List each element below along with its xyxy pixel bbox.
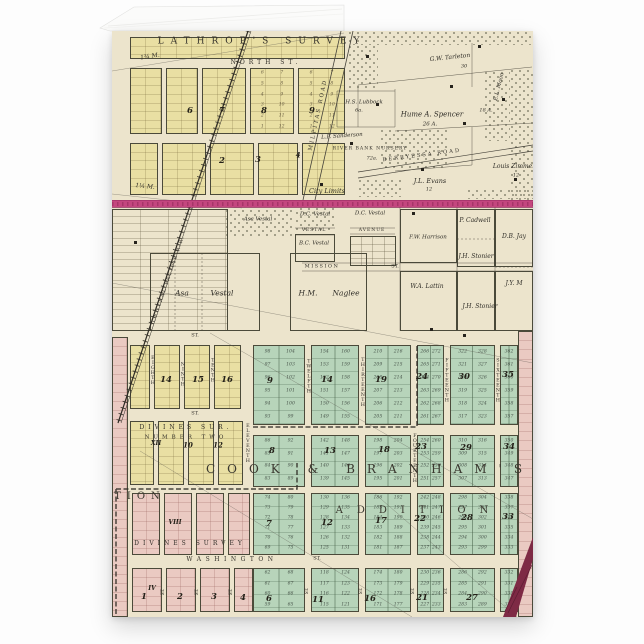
map-label: H.M.: [299, 289, 318, 297]
map-label: VIII: [168, 520, 181, 526]
map-label: 7: [219, 107, 225, 116]
map-label: Asa Vestal: [244, 217, 273, 223]
map-label: Asa: [175, 289, 189, 297]
map-label: MISSION: [305, 265, 340, 270]
map-label: 19: [375, 376, 387, 385]
map-label: 12: [513, 174, 519, 179]
map-label: G.W. Tarleton: [429, 53, 470, 63]
map-label: 16: [364, 595, 376, 604]
map-label: ST.: [196, 589, 201, 596]
map-label: 8: [261, 107, 267, 116]
map-label: 18 A.: [479, 109, 492, 114]
map-label: E.L. Moon: [494, 72, 506, 101]
map-label: 34: [503, 443, 515, 452]
map-label: J.H. Stonier: [462, 304, 497, 310]
map-label: 35: [502, 371, 514, 380]
map-label: 3: [255, 156, 261, 165]
map-label: 23: [415, 443, 427, 452]
map-label: 26 A.: [423, 122, 437, 128]
map-label: 9: [267, 377, 273, 386]
map-labels-layer: LATHROP'S SURVEYNORTH ST.COOK & BRANHAM'…: [112, 31, 533, 617]
map-label: L.F. Sanderson: [321, 133, 363, 141]
map-label: 6: [266, 595, 272, 604]
map-label: ST.: [230, 589, 235, 596]
map-label: SIXTEENTH: [495, 359, 500, 404]
map-label: AVENUE: [359, 229, 386, 234]
map-label: 14: [160, 376, 172, 385]
map-label: 28: [461, 514, 473, 523]
map-label: 17: [375, 517, 387, 526]
map-label: ST.: [306, 588, 311, 595]
map-label: TWELFTH: [306, 360, 311, 395]
map-label: 30: [461, 65, 467, 70]
map-label: B.C. Vestal: [299, 241, 329, 247]
map-label: ST.: [191, 412, 199, 417]
map-label: J.L. Evans: [414, 178, 446, 185]
map-label: 6a.: [355, 109, 363, 114]
map-label: COOK & BRANHAM'S: [206, 463, 533, 475]
map-label: EIGHTH: [150, 356, 155, 386]
map-label: D.C. Vestal: [300, 212, 330, 218]
map-label: 9: [309, 107, 315, 116]
map-label: W.A. Lattin: [410, 284, 443, 290]
map-label: 30: [458, 373, 470, 382]
map-label: 21: [416, 594, 428, 603]
map-label: 18: [378, 446, 390, 455]
map-label: 29: [460, 444, 472, 453]
map-label: VESTAL: [302, 229, 327, 234]
map-label: D.B. Jay: [502, 234, 526, 240]
map-label: P. Cadwell: [459, 218, 490, 224]
map-label: 7: [266, 520, 272, 529]
map-label: 12: [213, 442, 223, 449]
map-label: ELEVENTH: [245, 424, 250, 464]
map-label: 4: [240, 594, 246, 603]
map-label: DIVINES SUR.: [139, 425, 232, 431]
map-label: 16: [221, 376, 233, 385]
map-label: 14: [321, 376, 333, 385]
map-label: 72a.: [367, 157, 378, 162]
map-label: 8: [269, 447, 275, 456]
map-label: D.C. Vestal: [355, 211, 385, 217]
map-label: ST.: [162, 589, 167, 596]
map-label: ST.: [445, 588, 450, 595]
map-label: H.S. Lubbock: [345, 100, 383, 106]
map-label: TENTH: [210, 359, 215, 384]
map-label: J.Y. M: [506, 281, 523, 287]
map-label: 33: [502, 513, 514, 522]
map-label: RIVER BANK NURSERY: [333, 148, 408, 153]
map-label: XII: [151, 441, 161, 447]
map-label: NORTH ST.: [231, 60, 302, 66]
map-label: 1¾ M.: [140, 53, 160, 62]
card-inner-page: [94, 2, 348, 32]
map-label: 1¼ M.: [135, 183, 155, 191]
map-label: Vestal: [211, 289, 234, 297]
map-label: 12: [321, 519, 333, 528]
map-label: FIFTEENTH: [444, 359, 449, 404]
map-label: NINTH: [180, 363, 185, 388]
map-label: 27: [466, 594, 478, 603]
map-label: 1: [141, 593, 147, 602]
map-label: Louis Zimmer: [493, 164, 533, 170]
map-label: TION: [114, 492, 166, 502]
map-label: 13: [324, 447, 336, 456]
page-background: 6543217891011126543217891011129897969594…: [0, 0, 644, 644]
map-label: WASHINGTON: [186, 557, 277, 563]
map-label: 2: [219, 157, 225, 166]
map-label: 22: [414, 515, 426, 524]
map-label: 24: [416, 373, 428, 382]
map-label: 10: [183, 442, 193, 449]
map-label: 12: [426, 188, 432, 193]
map-label: 15: [192, 376, 204, 385]
map-label: F.W. Harrison: [409, 235, 447, 241]
greeting-card: 6543217891011126543217891011129897969594…: [112, 31, 533, 617]
map-label: DIVINES SURVEY: [134, 541, 246, 547]
map-label: IV: [148, 586, 155, 592]
map-label: ST.: [391, 265, 399, 270]
map-label: Naglee: [332, 289, 359, 297]
map-label: ST.: [313, 557, 321, 562]
map-label: J.H. Stonier: [458, 254, 493, 260]
map-label: Hume A. Spencer: [401, 112, 463, 119]
map-label: City Limits: [309, 188, 345, 195]
map-label: 6: [187, 107, 193, 116]
map-label: THIRTEENTH: [360, 358, 365, 408]
map-label: LATHROP'S SURVEY: [158, 38, 367, 47]
map-label: CENTRAL PACIFIC R.R.: [152, 235, 186, 323]
map-label: 4: [296, 152, 301, 159]
map-label: ST.: [191, 334, 199, 339]
map-label: 11: [312, 596, 324, 605]
map-label: 2: [177, 593, 183, 602]
map-label: 3: [211, 593, 217, 602]
